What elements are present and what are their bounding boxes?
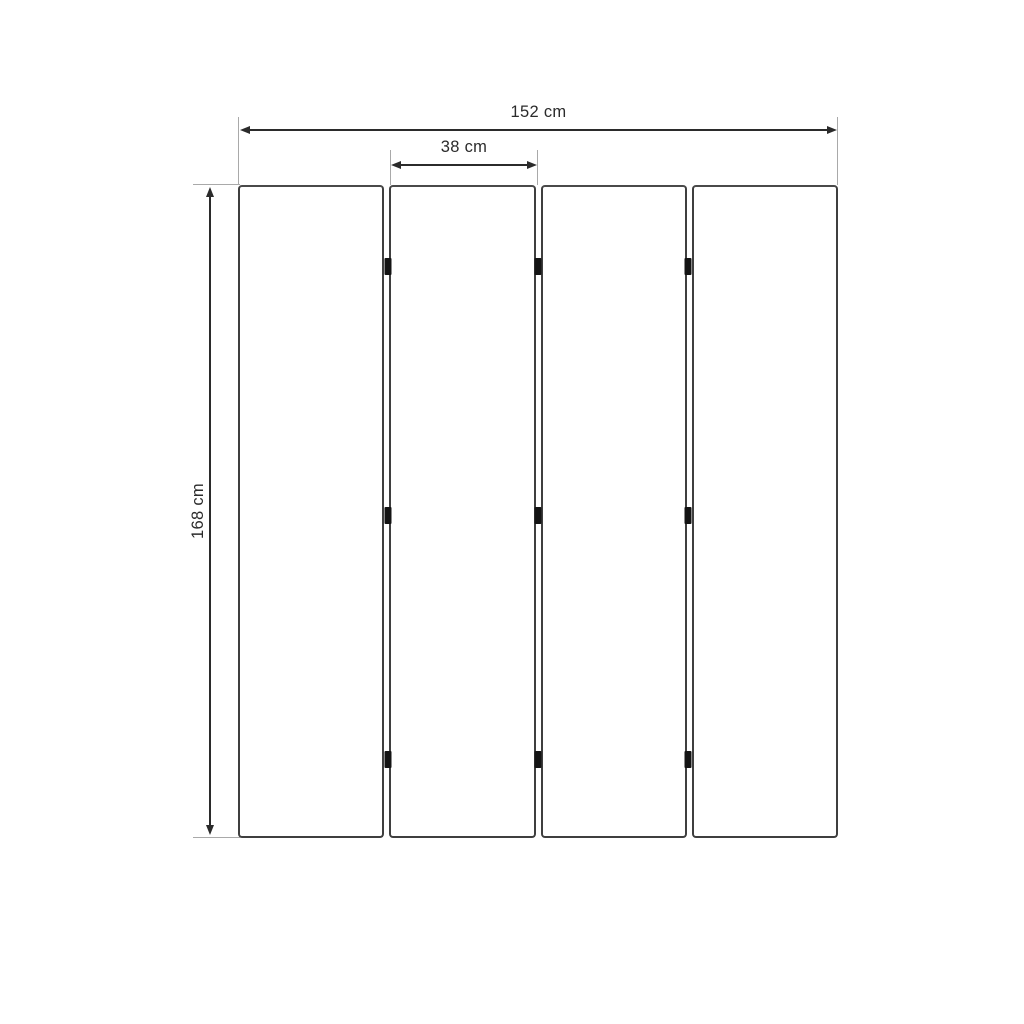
panel-width-label: 38 cm [391, 137, 537, 157]
hinge-icon [535, 258, 542, 275]
panel-1 [238, 185, 384, 838]
total-width-dimension-line [248, 129, 829, 131]
hinge-icon [535, 751, 542, 768]
panel-width-dimension-line [399, 164, 529, 166]
hinge-icon [685, 258, 692, 275]
dimension-diagram: 152 cm 38 cm 168 cm [0, 0, 1024, 1024]
hinge-icon [385, 507, 392, 524]
height-label-box: 168 cm [158, 471, 238, 551]
hinge-icon [385, 751, 392, 768]
hinge-icon [385, 258, 392, 275]
extension-line-height-bottom [193, 837, 240, 838]
arrowhead-up-icon [206, 187, 214, 197]
height-dimension-line [209, 196, 211, 827]
height-label: 168 cm [188, 483, 208, 539]
arrowhead-left-icon [391, 161, 401, 169]
divider-panels [238, 185, 838, 838]
extension-line-total-width-right [837, 117, 838, 185]
hinge-icon [685, 751, 692, 768]
extension-line-total-width-left [238, 117, 239, 185]
panel-2 [389, 185, 535, 838]
arrowhead-down-icon [206, 825, 214, 835]
arrowhead-right-icon [527, 161, 537, 169]
arrowhead-left-icon [240, 126, 250, 134]
hinge-icon [535, 507, 542, 524]
panel-3 [541, 185, 687, 838]
hinge-icon [685, 507, 692, 524]
extension-line-height-top [193, 184, 240, 185]
arrowhead-right-icon [827, 126, 837, 134]
total-width-label: 152 cm [240, 102, 837, 122]
panel-4 [692, 185, 838, 838]
extension-line-panel-width-right [537, 150, 538, 185]
